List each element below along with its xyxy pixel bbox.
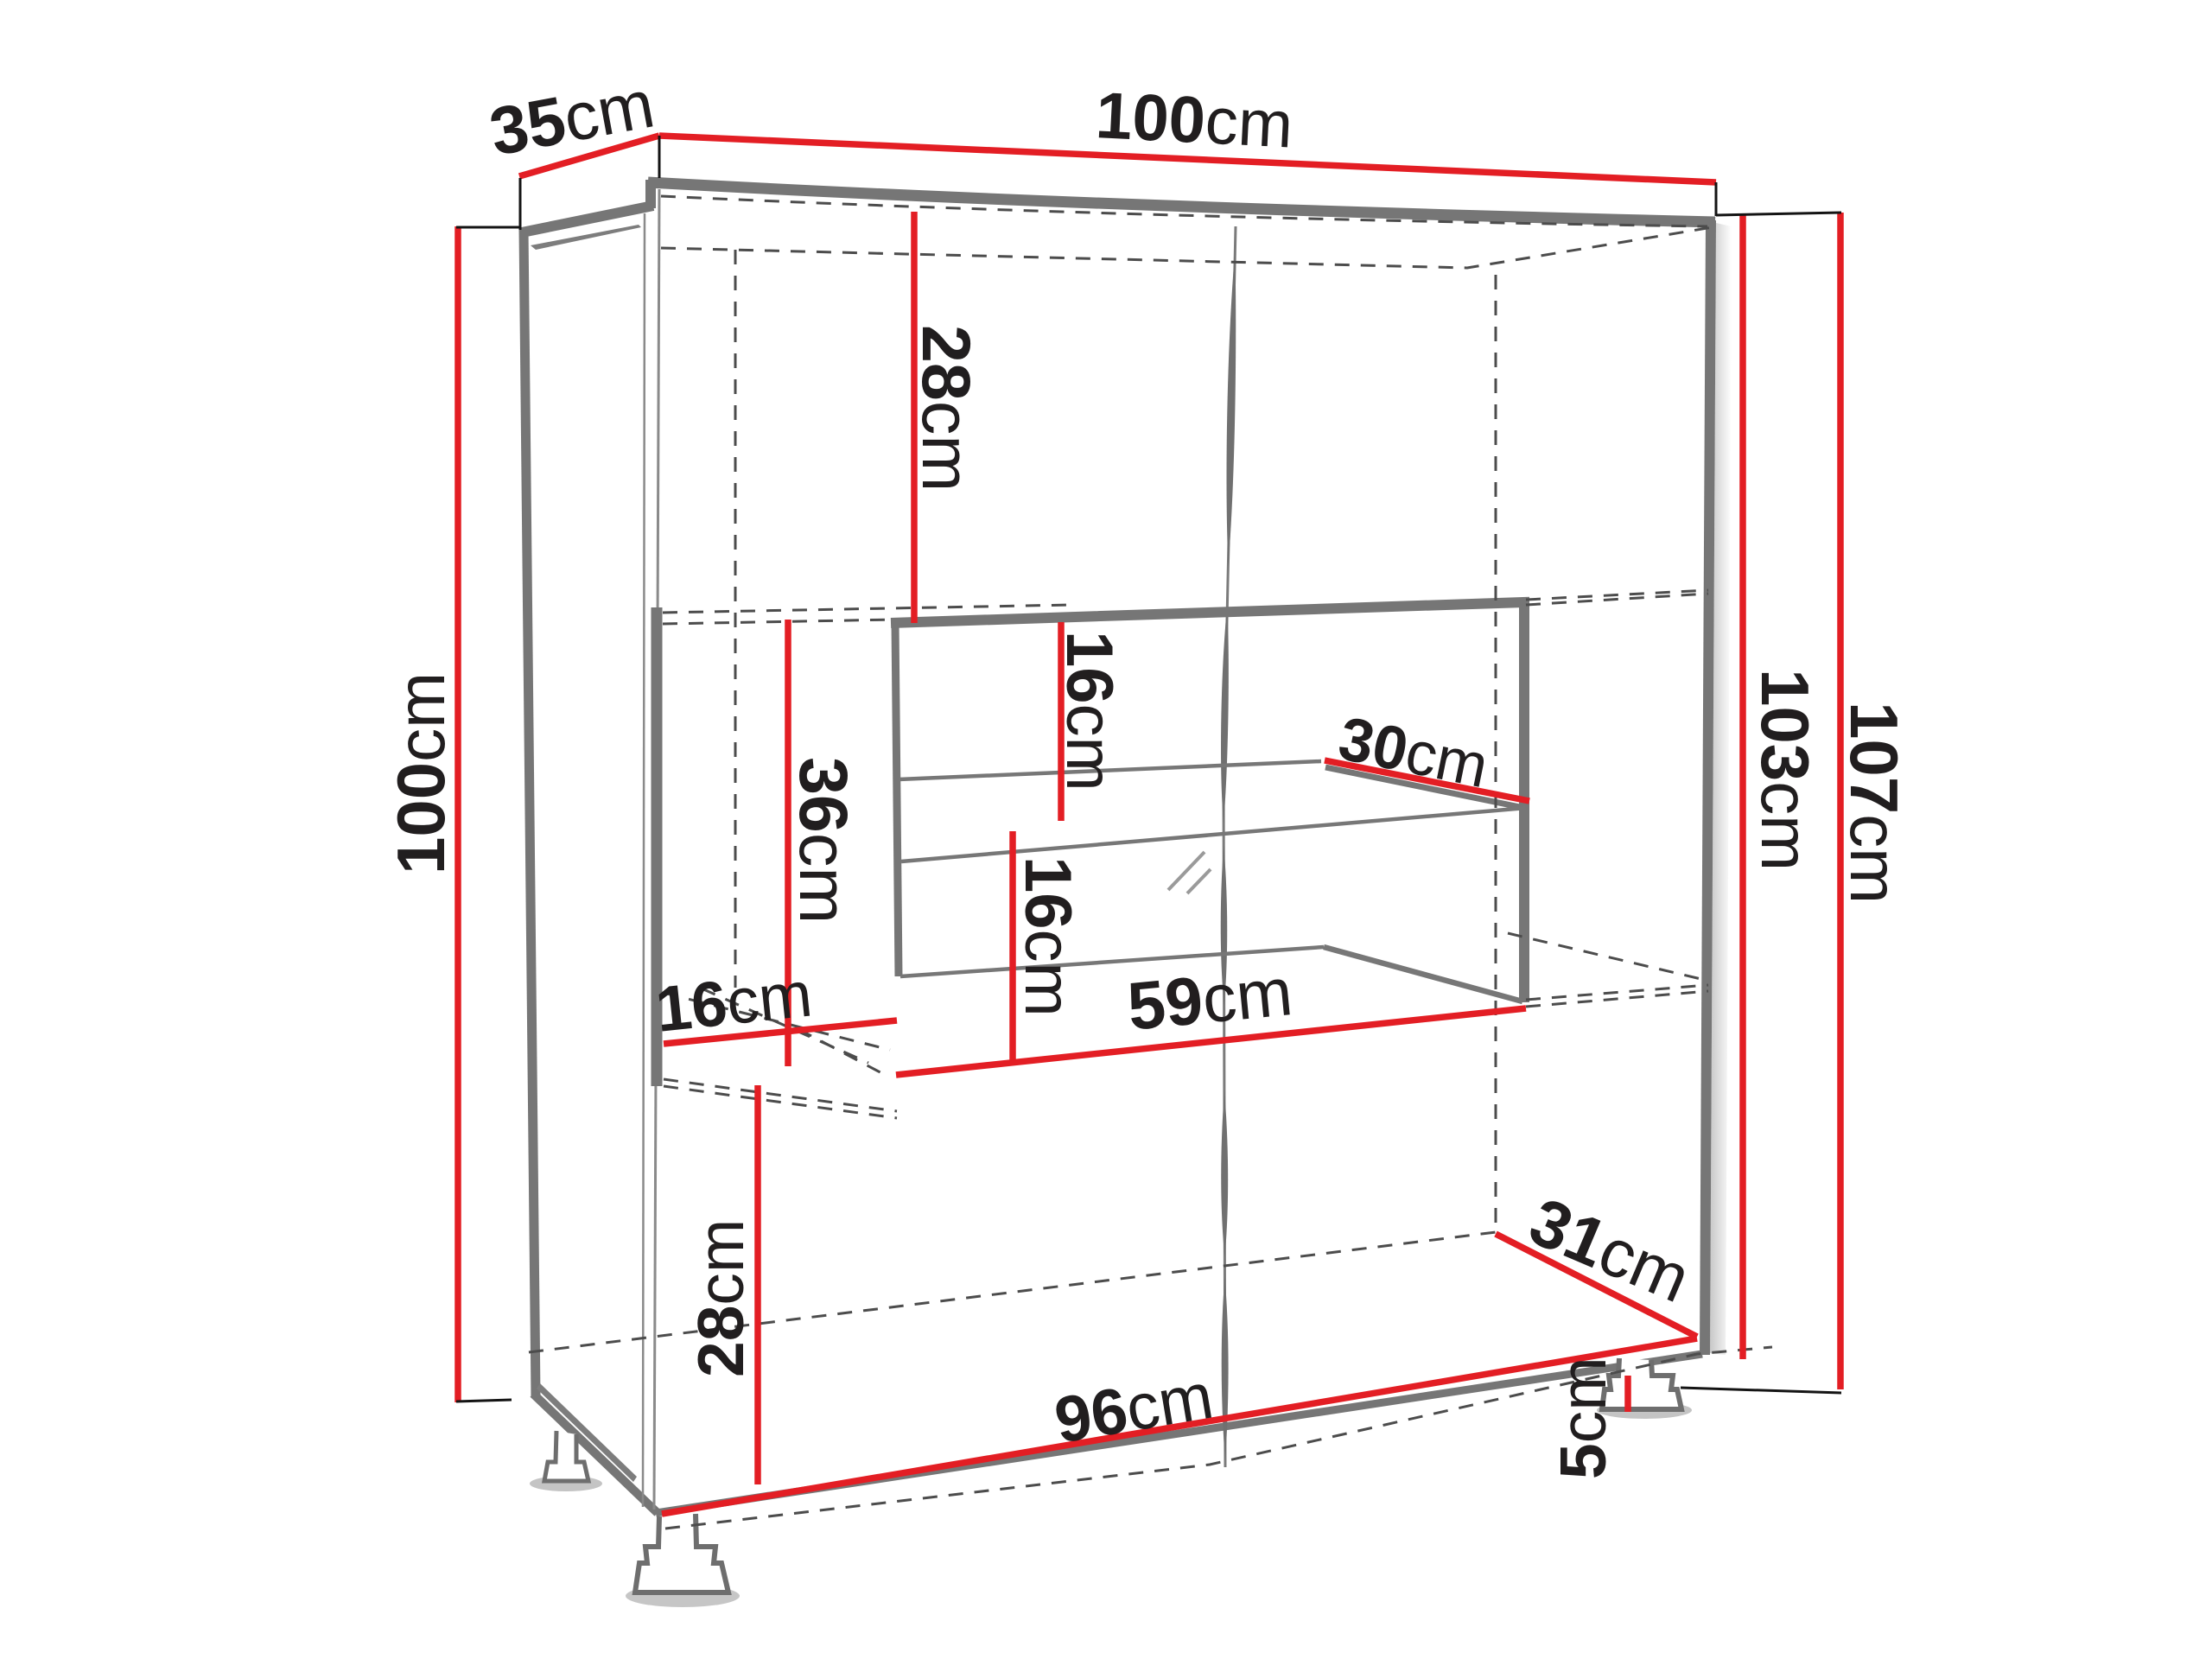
svg-text:100cm: 100cm — [1094, 79, 1294, 162]
svg-text:28cm: 28cm — [684, 1219, 757, 1377]
svg-text:28cm: 28cm — [908, 325, 985, 492]
svg-text:59cm: 59cm — [1124, 953, 1295, 1045]
svg-text:36cm: 36cm — [785, 757, 862, 924]
svg-text:107cm: 107cm — [1836, 702, 1912, 904]
svg-text:5cm: 5cm — [1547, 1357, 1619, 1479]
svg-text:103cm: 103cm — [1747, 669, 1823, 871]
svg-text:16cm: 16cm — [1052, 631, 1126, 791]
svg-text:100cm: 100cm — [383, 672, 459, 874]
svg-text:16cm: 16cm — [1011, 856, 1084, 1017]
